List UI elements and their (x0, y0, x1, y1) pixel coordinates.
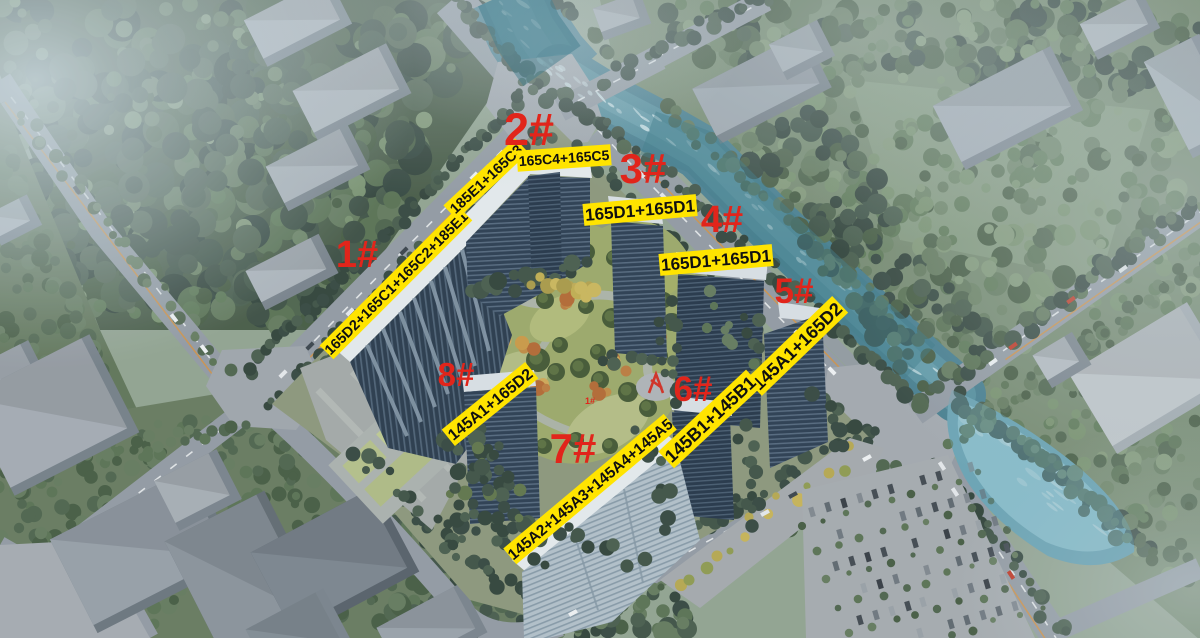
svg-text:8#: 8# (438, 356, 475, 393)
svg-text:1#: 1# (585, 396, 595, 406)
svg-text:2#: 2# (504, 104, 554, 155)
svg-text:6#: 6# (674, 370, 713, 409)
svg-text:4#: 4# (701, 199, 743, 241)
svg-text:7#: 7# (550, 425, 597, 472)
svg-text:3#: 3# (620, 145, 667, 192)
svg-text:5#: 5# (775, 272, 814, 311)
svg-text:1#: 1# (336, 234, 378, 276)
